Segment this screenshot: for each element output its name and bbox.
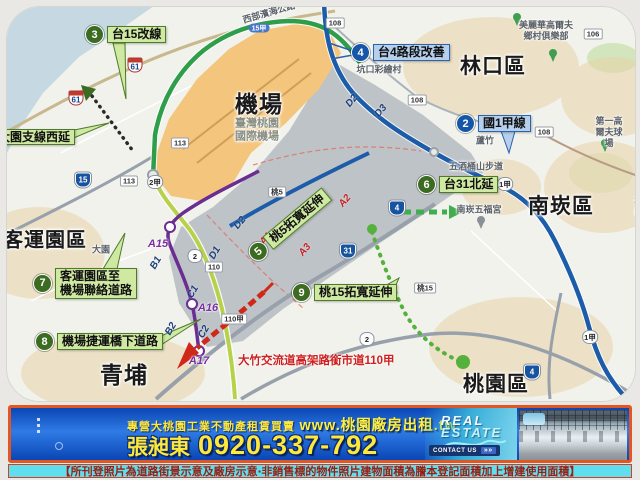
banner-decoration	[37, 418, 40, 434]
project-number-3: 3	[85, 25, 104, 44]
zone-label-C2: C2	[196, 324, 212, 341]
project-label-text: 國1甲線	[478, 115, 531, 131]
zone-label-D2: D2	[344, 93, 361, 110]
project-label-p3-tai15-reroute: 3台15改線	[85, 25, 166, 44]
place-label-miramar-golf-club: 美麗華高爾夫 鄉村俱樂部	[519, 20, 573, 42]
zone-label-A3: A3	[297, 242, 314, 259]
road-shield-桃15: 桃15	[414, 283, 436, 294]
project-number-7: 7	[33, 274, 52, 293]
place-label-nankan-wufu-temple: 南崁五福宮	[456, 205, 501, 216]
road-shield-113: 113	[171, 138, 189, 149]
road-shield-31: 31	[340, 244, 356, 259]
ad-banner: 專營大桃園工業不動產租賃買賣 www.桃園廠房出租.tw 張昶東 0920-33…	[8, 405, 632, 463]
project-label-p7-terminal-airport-link: 7客運園區至 機場聯絡道路	[33, 268, 137, 299]
contact-us-button[interactable]: CONTACT US »»	[429, 445, 500, 456]
place-label-dayuan: 大園	[92, 245, 110, 256]
road-shield-108: 108	[535, 127, 554, 138]
road-shield-1甲: 1甲	[582, 330, 598, 344]
project-label-text: 台4路段改善	[373, 44, 450, 60]
road-shield-113: 113	[120, 176, 138, 187]
road-shield-桃5: 桃5	[268, 187, 286, 198]
project-number-8: 8	[35, 332, 54, 351]
zone-label-B1: B1	[148, 255, 164, 272]
zone-label-D2: D2	[232, 215, 249, 232]
project-label-p4-tai4-improvement: 4台4路段改善	[351, 43, 450, 62]
place-label-first-golf-course: 第一高爾夫球場	[593, 116, 625, 148]
road-shield-61: 61	[69, 91, 84, 106]
station-a16: A16	[198, 302, 218, 314]
road-shield-110甲: 110甲	[221, 314, 247, 325]
real-estate-graphic: REAL ESTATE CONTACT US »»	[425, 408, 517, 460]
warehouse-doors	[519, 431, 627, 442]
contact-arrows-icon: »»	[481, 447, 496, 454]
region-label-taoyuan-district: 桃園區	[463, 373, 529, 397]
road-shield-4: 4	[389, 201, 405, 216]
station-a17: A17	[189, 355, 209, 367]
agent-name: 張昶東	[127, 431, 190, 461]
project-label-p6-tai31-north-ext: 6台31北延	[417, 175, 498, 194]
project-label-p8-mrt-underbridge-road: 8機場捷運橋下道路	[35, 332, 163, 351]
road-shield-4: 4	[524, 365, 540, 380]
project-label-p9-tao15-widening: 9桃15拓寬延伸	[292, 283, 397, 302]
project-label-text: 台31北延	[439, 176, 498, 192]
project-number-9: 9	[292, 283, 311, 302]
zone-label-A2: A2	[337, 193, 354, 210]
zone-label-B2: B2	[163, 321, 179, 338]
road-shield-61: 61	[128, 58, 143, 73]
region-label-airport: 機場	[235, 91, 283, 117]
road-shield-15甲: 15甲	[249, 24, 270, 33]
project-number-2: 2	[456, 114, 475, 133]
road-shield-1甲: 1甲	[497, 177, 513, 191]
region-label-bus-terminal-park: 客運園區	[6, 230, 87, 253]
project-label-text: 客運園區至 機場聯絡道路	[55, 268, 137, 299]
map-label-layer: 機場臺灣桃園 國際機場林口區南崁區桃園區青埔客運園區西部濱海公路坑口彩繪村美麗華…	[6, 6, 636, 402]
project-label-text: 台15改線	[107, 26, 166, 42]
place-label-wujiutong-trail: 五酒桶山步道	[449, 162, 503, 173]
place-label-luzhu: 蘆竹	[476, 136, 494, 147]
place-label-taoyuan-edge: 桃園	[634, 196, 636, 218]
project-number-6: 6	[417, 175, 436, 194]
disclaimer-strip: 【所刊登照片為道路街景示意及廠房示意‧非銷售標的物件照片建物面積為謄本登記面積加…	[8, 464, 632, 478]
region-label-airport-subtitle: 臺灣桃園 國際機場	[235, 117, 279, 142]
project-number-4: 4	[351, 43, 370, 62]
place-label-kengkou-painted-village: 坑口彩繪村	[356, 65, 401, 76]
banner-decoration-dot	[55, 442, 63, 450]
road-shield-15: 15	[75, 173, 91, 188]
road-shield-2: 2	[360, 332, 375, 346]
zone-label-D1: D1	[207, 245, 223, 262]
map-card: 機場臺灣桃園 國際機場林口區南崁區桃園區青埔客運園區西部濱海公路坑口彩繪村美麗華…	[6, 6, 636, 402]
zone-label-C1: C1	[185, 284, 201, 301]
banner-contact-row: 張昶東 0920-337-792	[127, 430, 378, 461]
road-shield-108: 108	[408, 95, 427, 106]
skylight	[523, 413, 545, 425]
region-label-qingpu: 青埔	[100, 362, 148, 388]
road-shield-108: 108	[326, 18, 345, 29]
project-label-p2-national1a: 2國1甲線	[456, 114, 531, 133]
road-shield-2: 2	[188, 249, 203, 263]
road-shield-110: 110	[205, 262, 223, 273]
project-label-text: 大園支線西延	[6, 129, 75, 145]
place-label-west-coast-highway: 西部濱海公路	[242, 6, 297, 26]
project-label-text: 桃15拓寬延伸	[314, 284, 397, 300]
project-label-p1-dayuan-branch-west-ext: 大園支線西延	[6, 129, 75, 145]
zone-label-D3: D3	[373, 103, 390, 120]
dazhu-interchange-note: 大竹交流道高架路銜市道110甲	[238, 352, 395, 368]
warehouse-photo	[519, 410, 627, 462]
region-label-nankan-district: 南崁區	[528, 195, 594, 219]
project-label-p5-tao5-widening: 5桃5拓寬延伸	[245, 187, 333, 265]
road-shield-106: 106	[584, 29, 603, 40]
contact-us-label: CONTACT US	[433, 448, 477, 454]
region-label-linkou-district: 林口區	[460, 55, 526, 79]
station-a15: A15	[148, 238, 168, 250]
agent-phone: 0920-337-792	[198, 430, 378, 461]
road-shield-2甲: 2甲	[147, 175, 163, 189]
project-label-text: 機場捷運橋下道路	[57, 333, 163, 349]
